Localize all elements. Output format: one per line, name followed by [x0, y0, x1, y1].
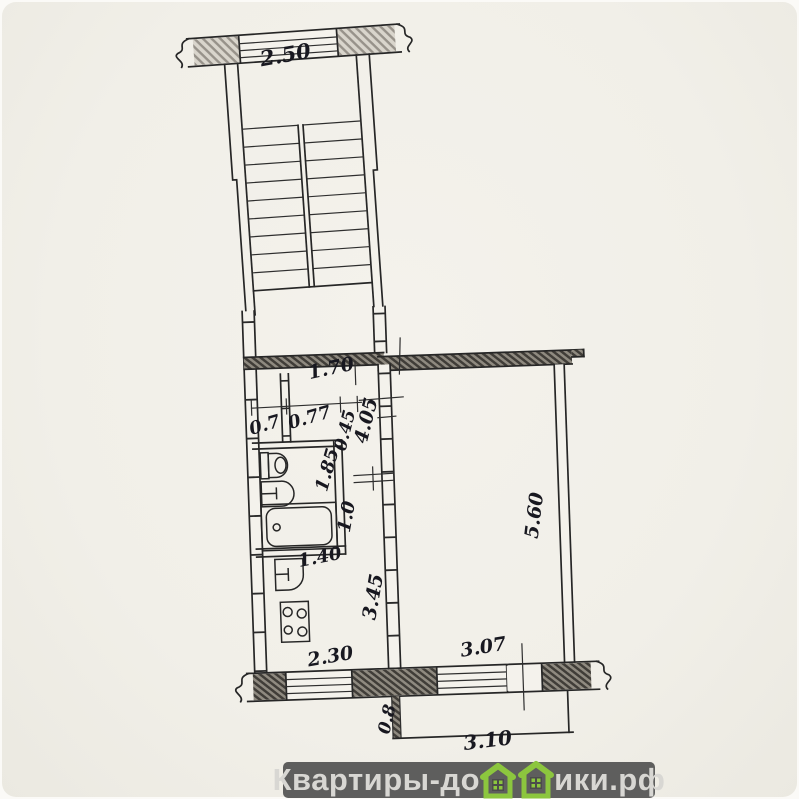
stair-landing-edge: [253, 283, 372, 291]
apartment-plan: 2.50: [175, 17, 613, 764]
floor-plan-drawing: 2.50: [0, 0, 799, 799]
kitchen-window: [286, 671, 353, 699]
watermark-text-left: Квартиры-до: [273, 762, 480, 798]
wall-break-mark: [597, 661, 612, 689]
dim-kitchen-window-label: 2.30: [305, 642, 355, 672]
dim-kitchen-length-label: 3.45: [358, 572, 388, 621]
bathtub: [261, 502, 338, 551]
dim-room-window-label: 3.07: [459, 633, 508, 662]
wall-pier: [336, 25, 396, 55]
dim-room-length-label: 5.60: [521, 491, 548, 540]
wash-basin: [261, 481, 294, 507]
stair-divider: [298, 125, 309, 287]
dim-bathroom-width-label: 1.85: [311, 446, 343, 494]
balcony-door-opening: [507, 664, 543, 691]
wall-pier: [352, 668, 438, 697]
wall-pier: [193, 36, 241, 65]
living-top-wall: [378, 350, 584, 371]
watermark-bar: Квартиры-до ики.рф: [283, 762, 655, 798]
landing-right-wall: [373, 306, 387, 352]
wall-break-mark: [175, 39, 191, 68]
dim-balcony-width-label: 3.10: [462, 725, 513, 755]
house-icon: [483, 766, 513, 796]
staircase-block: 2.50: [175, 23, 430, 319]
house-icon: [521, 764, 551, 796]
stair-steps: [242, 121, 372, 291]
stair-side-walls: [225, 54, 387, 316]
wall-break-mark: [397, 23, 413, 52]
bottom-exterior-wall: [235, 661, 611, 702]
wall-pier: [253, 673, 287, 700]
living-right-wall: [554, 364, 574, 662]
apartment-walls: [223, 299, 613, 744]
watermark-text-right: ики.рф: [554, 762, 665, 798]
wall-pier: [542, 662, 592, 690]
scanned-photo: 2.50: [0, 0, 799, 799]
balcony-outline: [568, 690, 569, 732]
stove: [280, 601, 309, 642]
closet-divider-wall: [280, 374, 290, 442]
green-houses-icon: [479, 760, 557, 799]
stair-divider: [303, 125, 314, 287]
kitchen-living-wall: [378, 364, 401, 668]
dim-corridor-width-label: 1.0: [334, 499, 360, 534]
wall-break-mark: [235, 673, 250, 701]
toilet: [260, 452, 288, 479]
living-window: [437, 665, 508, 693]
